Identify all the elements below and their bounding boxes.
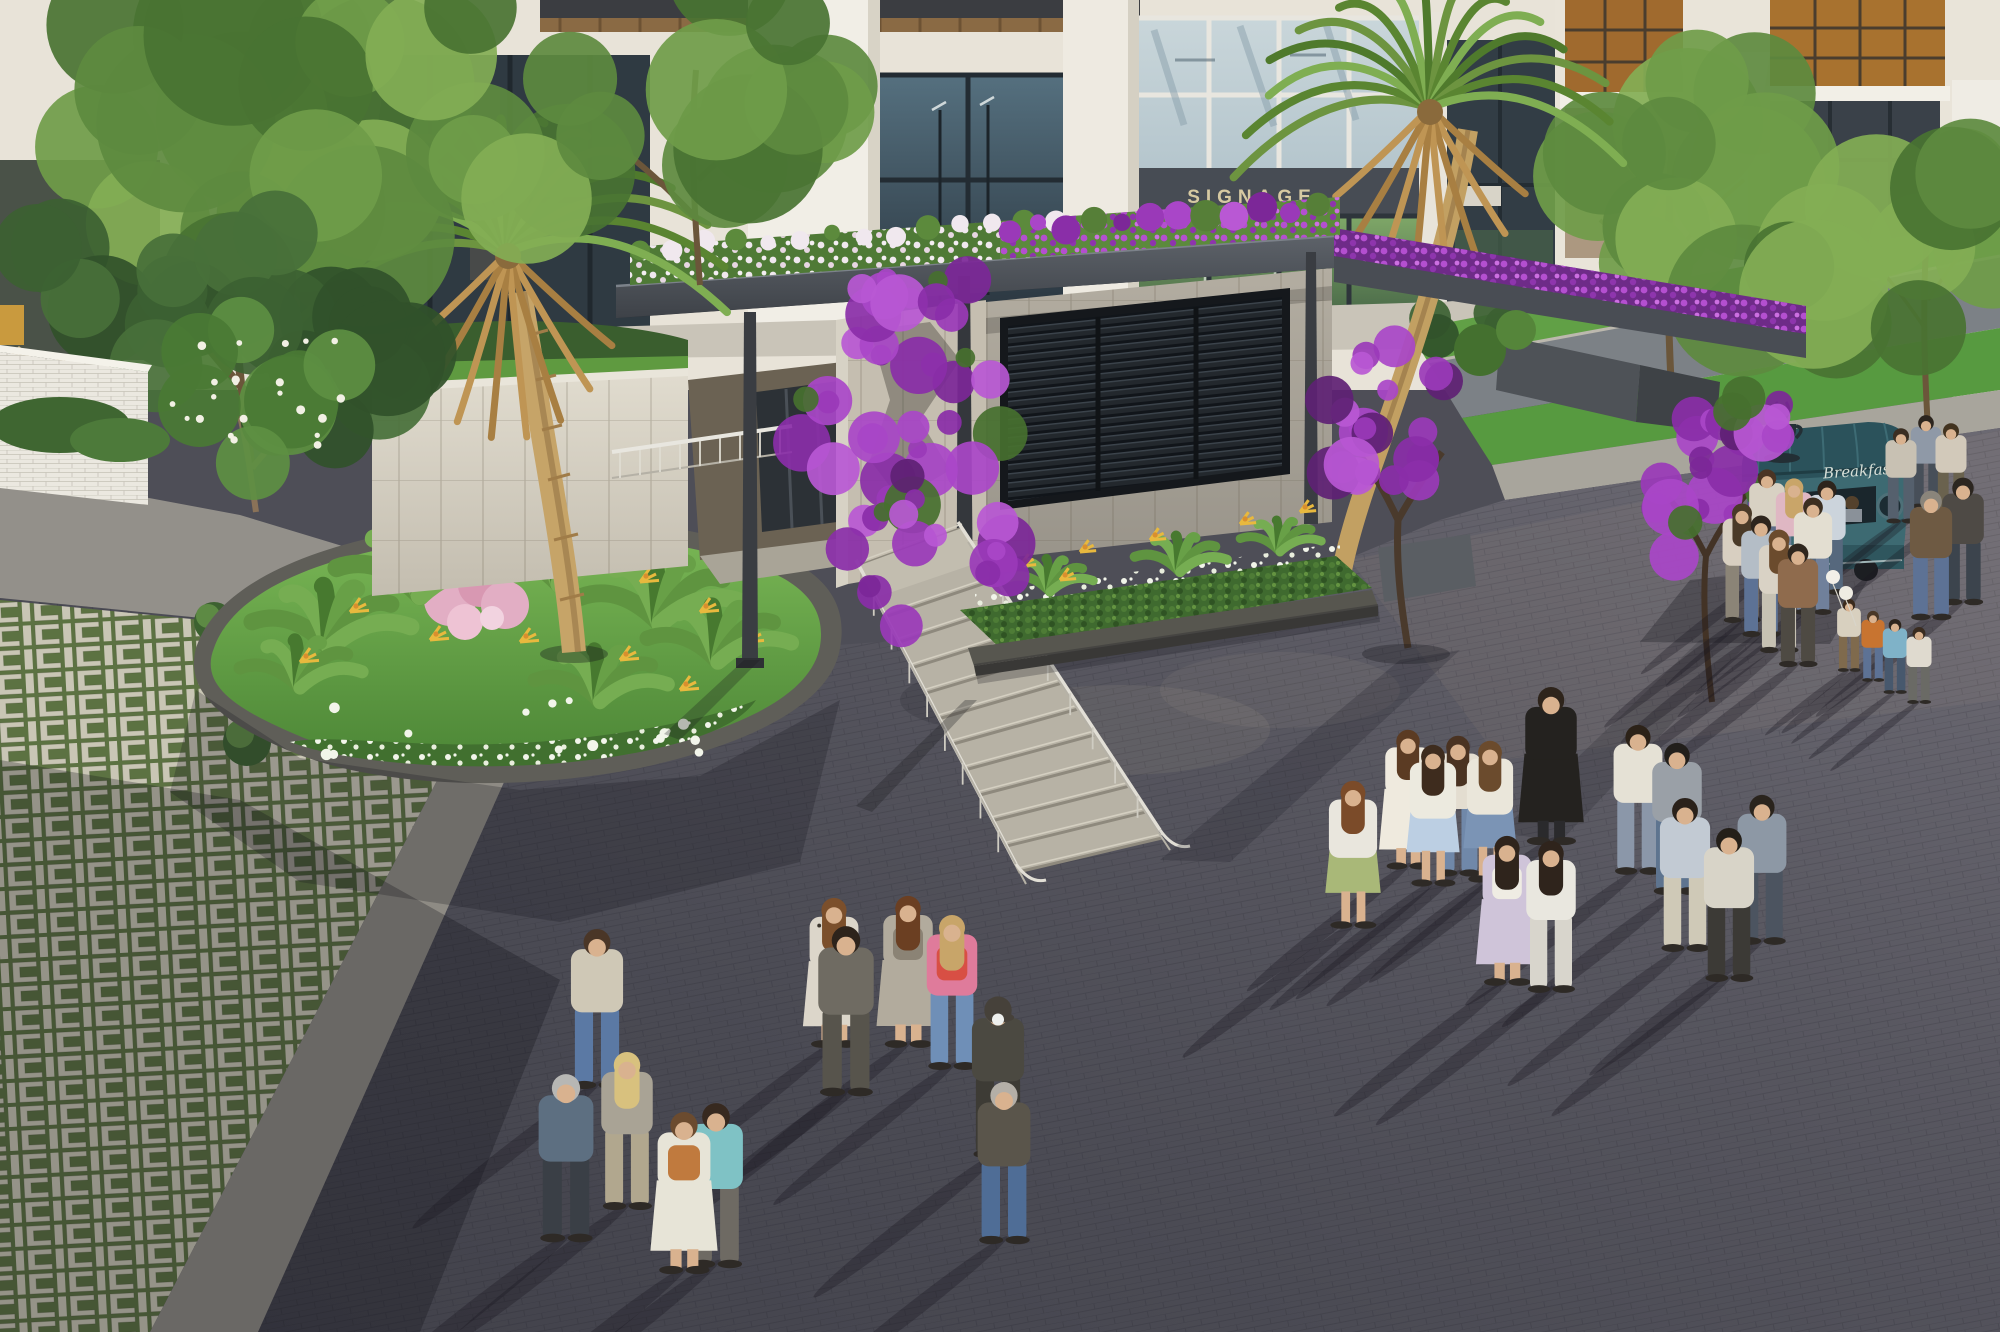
- scene-render: SIGNAGE: [0, 0, 2000, 1332]
- architectural-render-scene: SIGNAGE: [0, 0, 2000, 1332]
- canopy-column: [742, 312, 758, 664]
- white-brick-planter: [0, 345, 170, 505]
- louver-window: [1008, 297, 1282, 501]
